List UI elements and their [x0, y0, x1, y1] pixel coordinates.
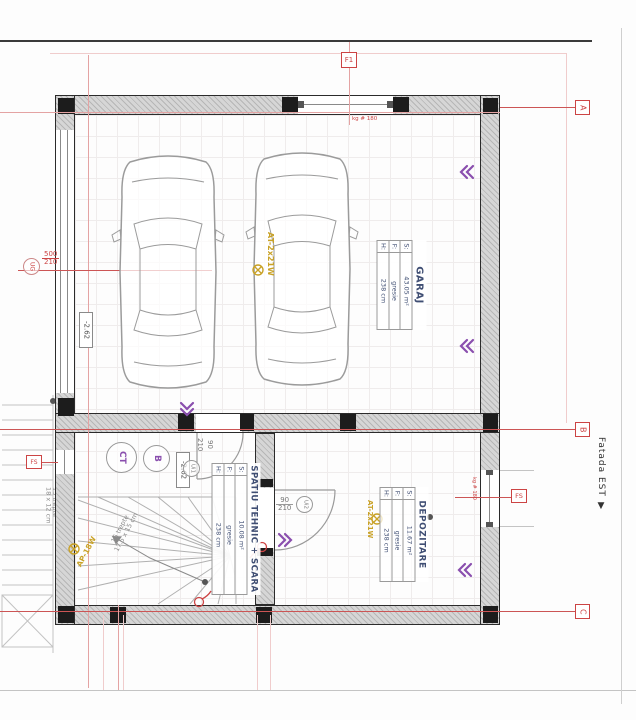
door-dim-Ui2: 90 210: [276, 497, 293, 512]
facade-label: Fatada EST ▼: [596, 437, 605, 512]
window-top-jamb-l: [298, 101, 304, 108]
exterior-stairs-line2: 18 x 12 cm: [45, 487, 52, 524]
door-tag-Ui2: Ui2: [296, 496, 313, 513]
axis-line-top-wall: [0, 112, 500, 113]
window-tag-FS-left: FS: [26, 455, 42, 469]
window-note-top: kg # 180: [352, 117, 377, 123]
level-marker-garage: -2.62: [79, 312, 93, 348]
grid-marker-A: A: [575, 100, 590, 115]
window-right-jamb-t: [486, 470, 493, 475]
garage-door-leaf-line: [60, 130, 61, 393]
equipment-b-label: B: [152, 455, 161, 462]
column: [58, 398, 74, 416]
room-floor-value: gresie: [225, 476, 236, 594]
overhang-line-right: [566, 53, 567, 423]
room-floor-value: gresie: [390, 253, 401, 329]
door-tag-label: Ui1: [189, 464, 195, 473]
room-table-garaj: GARAJ S:43.05 m² F:gresie H:238 cm: [377, 240, 425, 330]
garage-door-leaf-line2: [67, 130, 68, 393]
projection-line: [118, 605, 119, 690]
door-dim-Ui1-h: 210: [196, 438, 203, 451]
overhang-line-top: [50, 53, 566, 54]
door-height: 210: [276, 505, 293, 512]
room-area-value: 10.08 m²: [236, 476, 247, 594]
door-height: 210: [42, 259, 59, 266]
grid-marker-C: C: [575, 604, 590, 619]
window-tag-label: FS: [515, 492, 523, 500]
projection-line: [103, 615, 104, 690]
window-right-leader: [455, 497, 511, 498]
room-height-key: H:: [381, 488, 392, 500]
equipment-ct: CT: [106, 442, 137, 473]
room-height-value: 238 cm: [213, 476, 224, 594]
room-height-key: H:: [213, 464, 224, 476]
room-floor-key: F:: [393, 488, 404, 500]
room-area-value: 43.05 m²: [401, 253, 412, 329]
grid-line-B: [0, 429, 576, 430]
room-floor-value: gresie: [393, 500, 404, 581]
column: [282, 97, 298, 113]
room-height-value: 238 cm: [378, 253, 389, 329]
grid-line-C: [0, 611, 576, 612]
window-top-glass: [298, 104, 393, 105]
room-table-depozitare: DEPOZITARE S:11.67 m² F:gresie H:238 cm: [380, 487, 428, 582]
window-left-opening: [56, 450, 74, 474]
projection-line: [123, 615, 124, 690]
window-right-glass: [489, 470, 490, 527]
window-right-sill-top: [500, 470, 534, 471]
level-value: -2.62: [83, 321, 90, 339]
window-tag-label: FS: [30, 459, 37, 466]
light-label-garage: AT-2x21W: [266, 232, 274, 276]
door-tag-label: UG: [29, 262, 35, 271]
column: [393, 97, 409, 113]
room-name-depozitare: DEPOZITARE: [416, 487, 429, 582]
room-area-key: S:: [404, 488, 415, 500]
column: [483, 606, 498, 623]
floor-plan-canvas: 13 trepte 18 x 12 cm: [0, 0, 636, 720]
grid-marker-label: C: [579, 609, 587, 615]
equipment-b: B: [143, 445, 170, 472]
equipment-ct-label: CT: [117, 451, 126, 464]
door-tag-UG: UG: [23, 258, 40, 275]
window-left-leader: [42, 462, 58, 463]
section-line-top: [0, 40, 592, 42]
grid-marker-label: A: [579, 105, 587, 110]
projection-line: [270, 615, 271, 690]
exterior-stairs: [0, 395, 56, 655]
room-floor-key: F:: [225, 464, 236, 476]
room-height-value: 238 cm: [381, 500, 392, 581]
room-name-garaj: GARAJ: [413, 240, 427, 330]
grid-line-A: [500, 107, 576, 108]
projection-line: [257, 615, 258, 690]
axis-line-vertical-1: [88, 55, 89, 688]
room-height-key: H:: [378, 241, 389, 253]
room-area-key: S:: [401, 241, 412, 253]
light-label-storage: AT-2x21W: [366, 500, 373, 538]
window-tag-FS-right: FS: [511, 489, 527, 503]
window-right-sill-bottom: [500, 526, 534, 527]
window-left-glass: [64, 450, 65, 474]
garage-door-dim-line: [18, 270, 212, 271]
room-area-value: 11.67 m²: [404, 500, 415, 581]
door-tag-label: Ui2: [302, 500, 308, 509]
window-tag-label: F1: [345, 56, 353, 64]
door-dim-Ui1-w: 90: [206, 440, 213, 449]
room-floor-key: F:: [390, 241, 401, 253]
window-note-right: kg # 180: [471, 477, 476, 500]
room-table-spatiu-tehnic: SPATIU TEHNIC + SCARA S:10.08 m² F:gresi…: [212, 463, 258, 595]
window-tag-F1: F1: [341, 52, 357, 68]
wall-middle-horizontal: [55, 413, 500, 433]
terrain-line: [0, 690, 636, 691]
wall-right: [480, 95, 500, 625]
frame-edge-right: [621, 28, 622, 704]
room-area-key: S:: [236, 464, 247, 476]
window-right-jamb-b: [486, 522, 493, 527]
door-tag-Ui1: Ui1: [183, 460, 200, 477]
column: [58, 606, 74, 623]
grid-marker-B: B: [575, 422, 590, 437]
room-name-spatiu-tehnic: SPATIU TEHNIC + SCARA: [248, 463, 261, 595]
door-dim-UG: 500 210: [42, 251, 59, 266]
grid-marker-label: B: [579, 427, 587, 433]
window-right-opening: [481, 470, 499, 527]
